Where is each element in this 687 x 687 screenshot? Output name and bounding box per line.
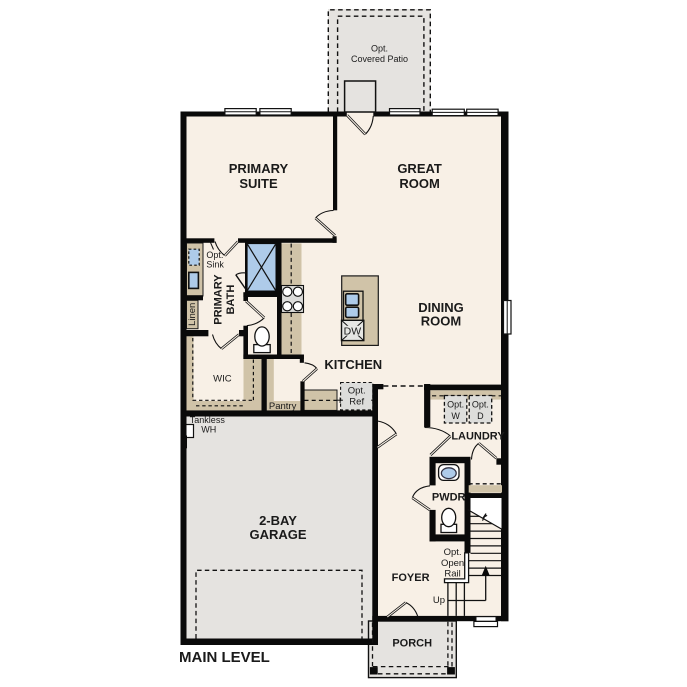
svg-text:Opt.: Opt. <box>206 250 223 260</box>
svg-text:Ref: Ref <box>349 396 364 407</box>
svg-text:PRIMARY: PRIMARY <box>212 274 224 325</box>
svg-text:Sink: Sink <box>206 260 224 270</box>
svg-text:KITCHEN: KITCHEN <box>324 357 382 372</box>
svg-text:ROOM: ROOM <box>421 314 461 329</box>
svg-text:Up: Up <box>433 595 445 606</box>
svg-text:DW: DW <box>344 326 362 338</box>
svg-text:Open: Open <box>441 558 464 569</box>
svg-text:PWDR: PWDR <box>432 491 466 503</box>
svg-text:DINING: DINING <box>418 300 464 315</box>
svg-text:Linen: Linen <box>187 303 198 326</box>
svg-text:BATH: BATH <box>225 285 237 315</box>
svg-text:Covered Patio: Covered Patio <box>351 54 408 64</box>
svg-text:D: D <box>477 411 484 421</box>
svg-text:Opt.: Opt. <box>447 400 464 410</box>
svg-text:Opt.: Opt. <box>472 400 489 410</box>
svg-text:PORCH: PORCH <box>392 638 432 650</box>
svg-text:Pantry: Pantry <box>269 401 297 412</box>
svg-text:MAIN LEVEL: MAIN LEVEL <box>179 649 270 666</box>
svg-text:Opt.: Opt. <box>348 385 366 396</box>
svg-text:SUITE: SUITE <box>239 176 278 191</box>
svg-text:PRIMARY: PRIMARY <box>229 161 289 176</box>
svg-text:GARAGE: GARAGE <box>249 527 306 542</box>
svg-text:LAUNDRY: LAUNDRY <box>451 430 505 442</box>
svg-text:WH: WH <box>201 425 216 435</box>
svg-text:Opt.: Opt. <box>444 547 462 558</box>
svg-text:Opt.: Opt. <box>371 44 388 54</box>
svg-text:ROOM: ROOM <box>399 176 439 191</box>
svg-text:Tankless: Tankless <box>190 415 226 425</box>
svg-text:FOYER: FOYER <box>392 572 430 584</box>
svg-text:W: W <box>451 411 460 421</box>
svg-text:WIC: WIC <box>213 374 232 385</box>
svg-text:Rail: Rail <box>444 569 460 580</box>
svg-text:GREAT: GREAT <box>397 161 442 176</box>
